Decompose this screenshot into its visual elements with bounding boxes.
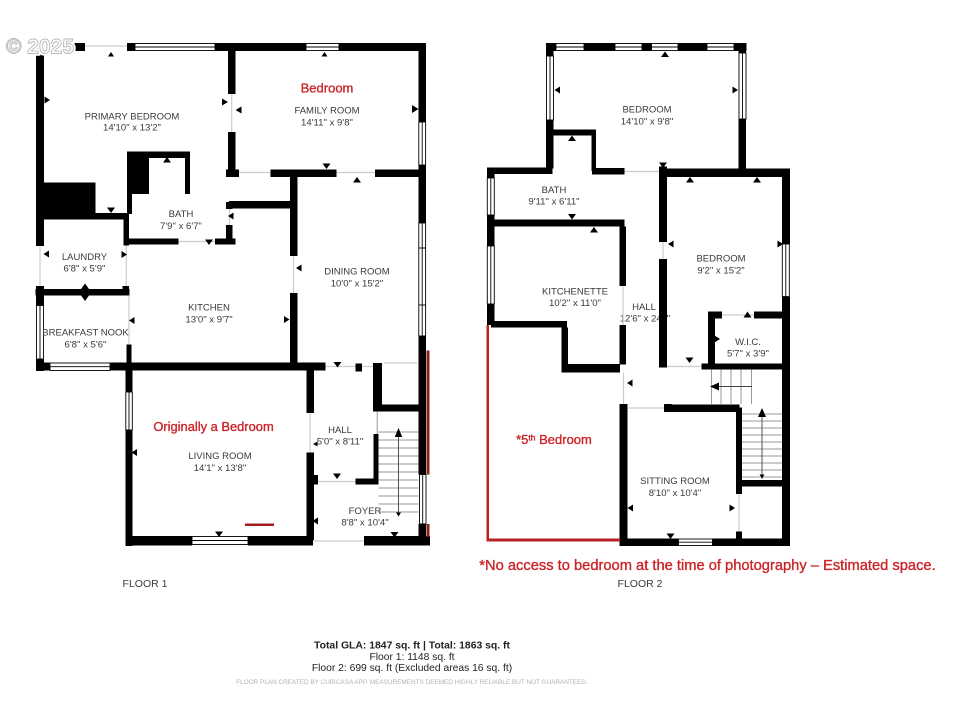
svg-text:14'11" x 9'8": 14'11" x 9'8" [301,118,353,129]
svg-text:Total GLA: 1847 sq. ft | Total: Total GLA: 1847 sq. ft | Total: 1863 sq.… [314,641,510,652]
svg-text:BATH: BATH [169,209,194,220]
svg-text:*5th Bedroom: *5th Bedroom [516,432,592,447]
svg-text:LIVING ROOM: LIVING ROOM [188,451,251,462]
svg-text:10'0" x 15'2": 10'0" x 15'2" [331,279,384,290]
svg-text:7'9" x 6'7": 7'9" x 6'7" [160,221,202,232]
svg-text:KITCHENETTE: KITCHENETTE [542,287,608,298]
svg-text:8'8" x 10'4": 8'8" x 10'4" [341,518,388,529]
svg-text:5'0" x 8'11": 5'0" x 8'11" [317,437,364,448]
svg-text:FLOOR 1: FLOOR 1 [123,578,168,590]
svg-text:6'8" x 5'9": 6'8" x 5'9" [64,264,106,275]
svg-text:Bedroom: Bedroom [301,81,354,96]
svg-text:Floor 2: 699 sq. ft (Excluded: Floor 2: 699 sq. ft (Excluded areas 16 s… [312,663,512,674]
svg-text:BEDROOM: BEDROOM [622,105,671,116]
svg-text:BREAKFAST NOOK: BREAKFAST NOOK [42,328,129,339]
svg-text:9'2" x 15'2": 9'2" x 15'2" [697,266,744,277]
svg-text:*No access to bedroom at the t: *No access to bedroom at the time of pho… [479,558,935,574]
svg-text:© 2025: © 2025 [6,36,74,59]
svg-text:SITTING ROOM: SITTING ROOM [640,476,710,487]
svg-text:13'0" x 9'7": 13'0" x 9'7" [185,315,232,326]
svg-text:BATH: BATH [542,185,567,196]
svg-text:FOYER: FOYER [349,506,382,517]
svg-text:HALL: HALL [632,302,656,313]
svg-text:Floor 1: 1148 sq. ft: Floor 1: 1148 sq. ft [369,652,454,663]
svg-text:14'1" x 13'8": 14'1" x 13'8" [194,463,247,474]
svg-text:W.I.C.: W.I.C. [735,337,761,348]
svg-text:HALL: HALL [328,425,352,436]
svg-text:FLOOR 2: FLOOR 2 [618,578,663,590]
svg-text:14'10" x 13'2": 14'10" x 13'2" [103,123,161,134]
svg-text:5'7" x 3'9": 5'7" x 3'9" [727,349,769,360]
svg-text:PRIMARY BEDROOM: PRIMARY BEDROOM [85,112,180,123]
svg-text:Originally a Bedroom: Originally a Bedroom [153,419,273,434]
svg-text:FLOOR PLAN CREATED BY CUBICASA: FLOOR PLAN CREATED BY CUBICASA APP. MEAS… [236,679,588,686]
svg-text:LAUNDRY: LAUNDRY [62,252,108,263]
svg-text:6'8" x 5'6": 6'8" x 5'6" [65,340,107,351]
svg-text:9'11" x 6'11": 9'11" x 6'11" [528,197,579,208]
svg-text:KITCHEN: KITCHEN [188,303,230,314]
svg-text:10'2" x 11'0": 10'2" x 11'0" [549,298,601,309]
svg-text:FAMILY ROOM: FAMILY ROOM [294,106,359,117]
svg-text:BEDROOM: BEDROOM [696,254,745,265]
svg-text:8'10" x 10'4": 8'10" x 10'4" [649,488,702,499]
svg-text:DINING ROOM: DINING ROOM [324,267,390,278]
svg-text:14'10" x 9'8": 14'10" x 9'8" [621,117,674,128]
